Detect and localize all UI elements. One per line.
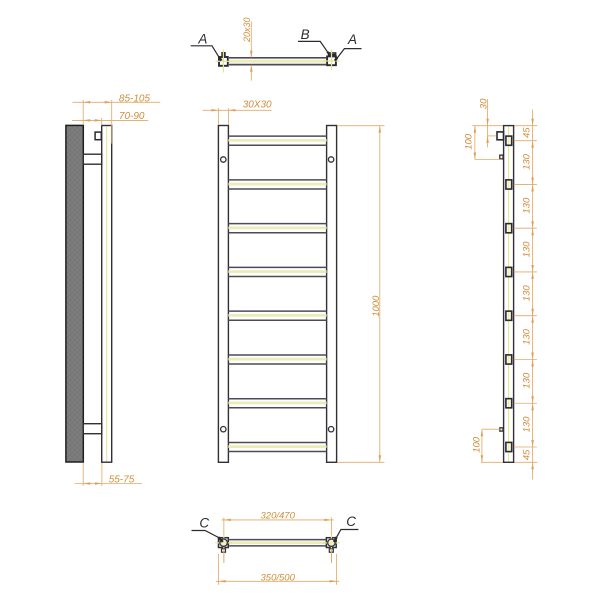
svg-text:C: C [199, 516, 209, 531]
svg-text:350/500: 350/500 [261, 572, 296, 583]
svg-text:130: 130 [521, 285, 532, 302]
svg-text:B: B [301, 27, 310, 42]
svg-text:130: 130 [521, 416, 532, 433]
svg-text:55-75: 55-75 [109, 474, 135, 485]
svg-text:130: 130 [521, 372, 532, 389]
svg-text:30: 30 [478, 98, 489, 109]
svg-text:70-90: 70-90 [119, 111, 145, 122]
svg-text:130: 130 [521, 153, 532, 170]
svg-text:320/470: 320/470 [261, 511, 296, 522]
svg-text:1000: 1000 [371, 295, 382, 317]
svg-text:45: 45 [521, 449, 532, 460]
svg-text:130: 130 [521, 328, 532, 345]
svg-text:45: 45 [521, 127, 532, 138]
svg-text:30X30: 30X30 [243, 100, 272, 111]
svg-text:A: A [347, 32, 357, 47]
svg-text:85-105: 85-105 [119, 93, 151, 104]
svg-text:130: 130 [521, 197, 532, 214]
svg-text:100: 100 [464, 133, 475, 150]
svg-text:130: 130 [521, 241, 532, 258]
svg-text:C: C [346, 514, 356, 529]
svg-text:100: 100 [472, 436, 483, 453]
svg-text:20x30: 20x30 [242, 17, 252, 43]
svg-text:A: A [197, 32, 207, 47]
